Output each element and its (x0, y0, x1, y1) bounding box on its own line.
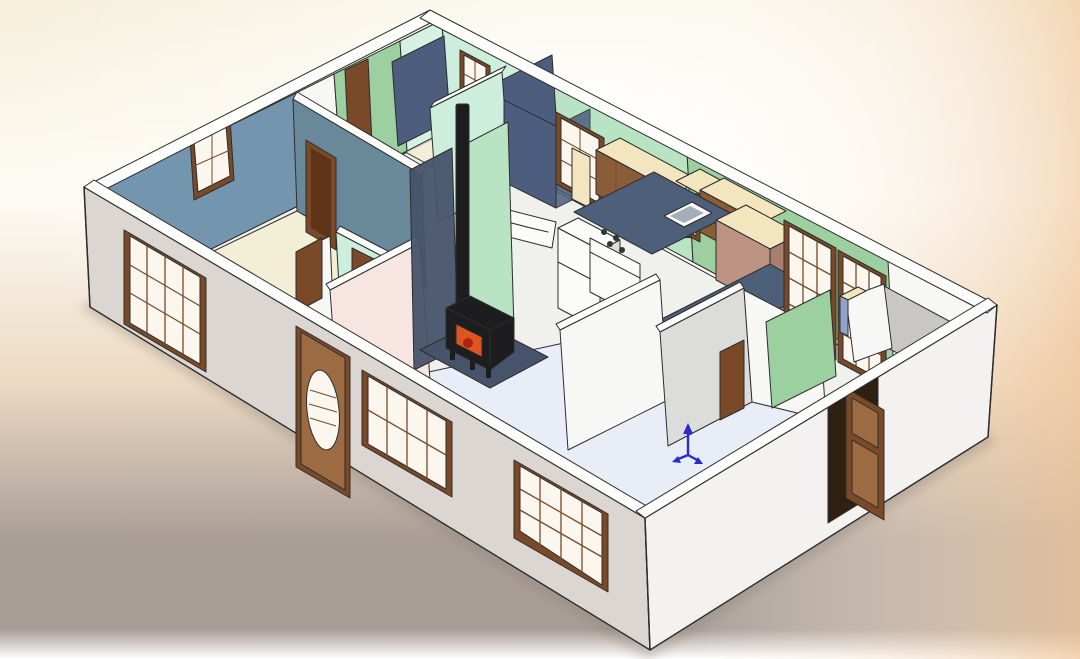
house-render (0, 0, 1080, 659)
entry-door-frame (720, 340, 744, 420)
master-door-panel (311, 148, 331, 240)
stove-pipe (456, 104, 469, 318)
cad-3d-viewport[interactable] (0, 0, 1080, 659)
front-door (296, 326, 350, 498)
range-hood (572, 148, 590, 208)
